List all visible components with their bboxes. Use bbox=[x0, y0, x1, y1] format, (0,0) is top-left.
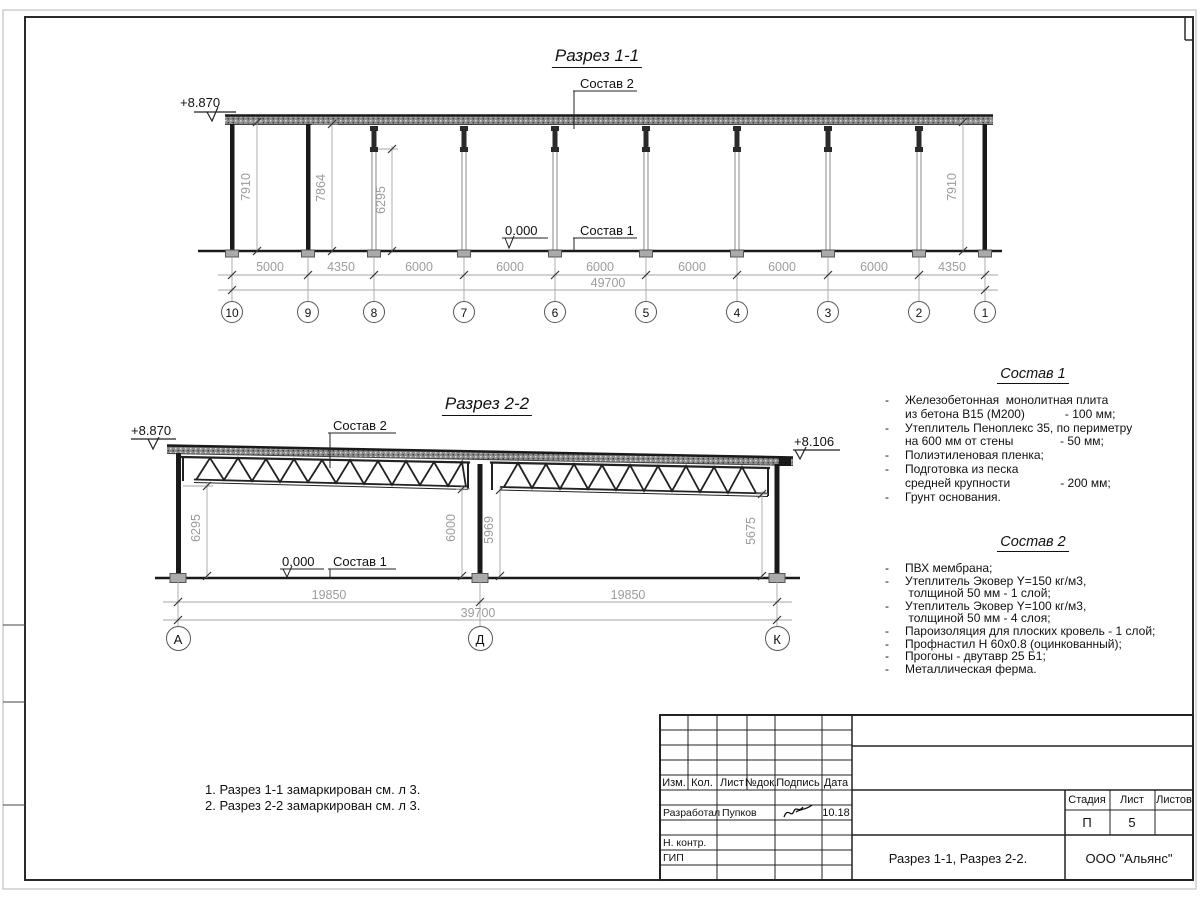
bullet: - bbox=[878, 463, 905, 491]
grid-bubble: 3 bbox=[817, 301, 839, 323]
vdim-label: 5675 bbox=[744, 517, 758, 545]
stamp-header-sheets: Листов bbox=[1156, 794, 1192, 806]
bullet: - bbox=[878, 491, 905, 505]
grid-bubble-label: А bbox=[174, 632, 183, 647]
note-line: 2. Разрез 2-2 замаркирован см. л 3. bbox=[205, 798, 420, 814]
stamp-company: ООО "Альянс" bbox=[1086, 851, 1173, 866]
list-item: -Утеплитель Пеноплекс 35, по периметру н… bbox=[878, 422, 1188, 450]
vdim-label: 7910 bbox=[239, 173, 253, 201]
zero-level-label-1-1: 0.000 bbox=[505, 223, 538, 238]
list-item: -Утеплитель Эковер Y=100 кг/м3, толщиной… bbox=[878, 600, 1188, 625]
stamp-razrabotal-name: Пупков bbox=[722, 807, 757, 819]
vdim-label: 6295 bbox=[189, 514, 203, 542]
grid-bubble-label: 1 bbox=[982, 306, 989, 320]
vdim-label: 5969 bbox=[482, 516, 496, 544]
section-2-2-title: Разрез 2-2 bbox=[442, 394, 532, 416]
dim-label: 19850 bbox=[611, 588, 646, 602]
vdim-label: 6295 bbox=[374, 186, 388, 214]
sostav1-heading: Состав 1 bbox=[878, 366, 1188, 382]
stamp-header-podpis: Подпись bbox=[776, 777, 820, 789]
vdim-label: 7864 bbox=[314, 174, 328, 202]
grid-bubble-label: 4 bbox=[734, 306, 741, 320]
elevation-top-1-1: +8.870 bbox=[180, 95, 220, 110]
bullet: - bbox=[878, 663, 905, 676]
list-item: -Металлическая ферма. bbox=[878, 663, 1188, 676]
list-item: -Подготовка из песка средней крупности -… bbox=[878, 463, 1188, 491]
dim-label: 6000 bbox=[586, 260, 614, 274]
bullet: - bbox=[878, 575, 905, 600]
bullet: - bbox=[878, 422, 905, 450]
dim-label: 6000 bbox=[496, 260, 524, 274]
list-item: -Полиэтиленовая пленка; bbox=[878, 449, 1188, 463]
dim-label: 4350 bbox=[938, 260, 966, 274]
bullet: - bbox=[878, 394, 905, 422]
sostav1-leader-label-2-2: Состав 1 bbox=[333, 554, 387, 569]
sostav2-block: Состав 2 -ПВХ мембрана; -Утеплитель Эков… bbox=[878, 534, 1188, 675]
list-item-text: Металлическая ферма. bbox=[905, 663, 1188, 676]
grid-bubble: 7 bbox=[453, 301, 475, 323]
dim-label: 6000 bbox=[405, 260, 433, 274]
grid-bubble-label: 3 bbox=[825, 306, 832, 320]
grid-bubble-label: 9 bbox=[305, 306, 312, 320]
stamp-header-izm: Изм. bbox=[662, 777, 686, 789]
grid-bubble: Д bbox=[468, 626, 493, 651]
sostav2-heading: Состав 2 bbox=[878, 534, 1188, 550]
dim-label: 6000 bbox=[860, 260, 888, 274]
elevation-left-2-2: +8.870 bbox=[131, 423, 171, 438]
list-item-text: Утеплитель Эковер Y=150 кг/м3, толщиной … bbox=[905, 575, 1188, 600]
stamp-header-list: Лист bbox=[720, 777, 744, 789]
sostav2-leader-label-1-1: Состав 2 bbox=[580, 76, 634, 91]
stamp-header-ndok: №док. bbox=[745, 777, 777, 789]
dim-label: 6000 bbox=[678, 260, 706, 274]
drawing-sheet: Разрез 1-1 +8.870 Состав 2 Состав 1 0.00… bbox=[0, 0, 1200, 900]
list-item-text: Железобетонная монолитная плита из бетон… bbox=[905, 394, 1188, 422]
grid-bubble-label: 7 bbox=[461, 306, 468, 320]
section-1-1-title: Разрез 1-1 bbox=[552, 46, 642, 68]
stamp-header-stadia: Стадия bbox=[1068, 794, 1106, 806]
stamp-doc-title: Разрез 1-1, Разрез 2-2. bbox=[889, 851, 1027, 866]
dim-label: 4350 bbox=[327, 260, 355, 274]
stamp-nkontr-label: Н. контр. bbox=[663, 837, 706, 849]
grid-bubble: 10 bbox=[221, 301, 243, 323]
grid-bubble-label: 2 bbox=[916, 306, 923, 320]
list-item-text: Утеплитель Эковер Y=100 кг/м3, толщиной … bbox=[905, 600, 1188, 625]
total-dim-label: 39700 bbox=[461, 606, 496, 620]
grid-bubble: К bbox=[765, 626, 790, 651]
grid-bubble: А bbox=[166, 626, 191, 651]
grid-bubble-label: 5 bbox=[643, 306, 650, 320]
total-dim-label: 49700 bbox=[591, 276, 626, 290]
bullet: - bbox=[878, 449, 905, 463]
grid-bubble-label: К bbox=[773, 632, 781, 647]
list-item-text: Подготовка из песка средней крупности - … bbox=[905, 463, 1188, 491]
grid-bubble-label: 10 bbox=[225, 306, 238, 320]
vdim-label: 6000 bbox=[444, 514, 458, 542]
list-item: -Пароизоляция для плоских кровель - 1 сл… bbox=[878, 625, 1188, 638]
bullet: - bbox=[878, 625, 905, 638]
stamp-stadia-value: П bbox=[1082, 815, 1091, 830]
grid-bubble: 5 bbox=[635, 301, 657, 323]
stamp-razrabotal-label: Разработал bbox=[663, 807, 720, 819]
elevation-right-2-2: +8.106 bbox=[794, 434, 834, 449]
list-item: -Железобетонная монолитная плита из бето… bbox=[878, 394, 1188, 422]
grid-bubble-label: 8 bbox=[371, 306, 378, 320]
grid-bubble: 8 bbox=[363, 301, 385, 323]
list-item-text: ПВХ мембрана; bbox=[905, 562, 1188, 575]
stamp-header-data: Дата bbox=[824, 777, 848, 789]
bullet: - bbox=[878, 562, 905, 575]
dim-label: 19850 bbox=[312, 588, 347, 602]
dim-label: 6000 bbox=[768, 260, 796, 274]
stamp-gip-label: ГИП bbox=[663, 852, 684, 864]
bullet: - bbox=[878, 650, 905, 663]
sostav2-leader-label-2-2: Состав 2 bbox=[333, 418, 387, 433]
note-line: 1. Разрез 1-1 замаркирован см. л 3. bbox=[205, 782, 420, 798]
stamp-header-sheet: Лист bbox=[1120, 794, 1144, 806]
grid-bubble-label: 6 bbox=[552, 306, 559, 320]
bullet: - bbox=[878, 638, 905, 651]
zero-level-label-2-2: 0.000 bbox=[282, 554, 315, 569]
dim-label: 5000 bbox=[256, 260, 284, 274]
list-item-text: Полиэтиленовая пленка; bbox=[905, 449, 1188, 463]
stamp-header-kol: Кол. bbox=[691, 777, 713, 789]
stamp-razrabotal-date: 10.18 bbox=[822, 807, 850, 819]
vdim-label: 7910 bbox=[945, 173, 959, 201]
list-item-text: Пароизоляция для плоских кровель - 1 сло… bbox=[905, 625, 1188, 638]
sostav1-block: Состав 1 -Железобетонная монолитная плит… bbox=[878, 366, 1188, 504]
stamp-sheet-value: 5 bbox=[1128, 815, 1135, 830]
list-item-text: Утеплитель Пеноплекс 35, по периметру на… bbox=[905, 422, 1188, 450]
grid-bubble-label: Д bbox=[476, 632, 485, 647]
list-item: -Прогоны - двутавр 25 Б1; bbox=[878, 650, 1188, 663]
list-item-text: Прогоны - двутавр 25 Б1; bbox=[905, 650, 1188, 663]
list-item-text: Грунт основания. bbox=[905, 491, 1188, 505]
signature bbox=[784, 805, 812, 817]
grid-bubble: 1 bbox=[974, 301, 996, 323]
grid-bubble: 9 bbox=[297, 301, 319, 323]
grid-bubble: 4 bbox=[726, 301, 748, 323]
list-item: -Утеплитель Эковер Y=150 кг/м3, толщиной… bbox=[878, 575, 1188, 600]
list-item: -ПВХ мембрана; bbox=[878, 562, 1188, 575]
grid-bubble: 2 bbox=[908, 301, 930, 323]
grid-bubble: 6 bbox=[544, 301, 566, 323]
bullet: - bbox=[878, 600, 905, 625]
list-item: -Грунт основания. bbox=[878, 491, 1188, 505]
sostav1-leader-label-1-1: Состав 1 bbox=[580, 223, 634, 238]
